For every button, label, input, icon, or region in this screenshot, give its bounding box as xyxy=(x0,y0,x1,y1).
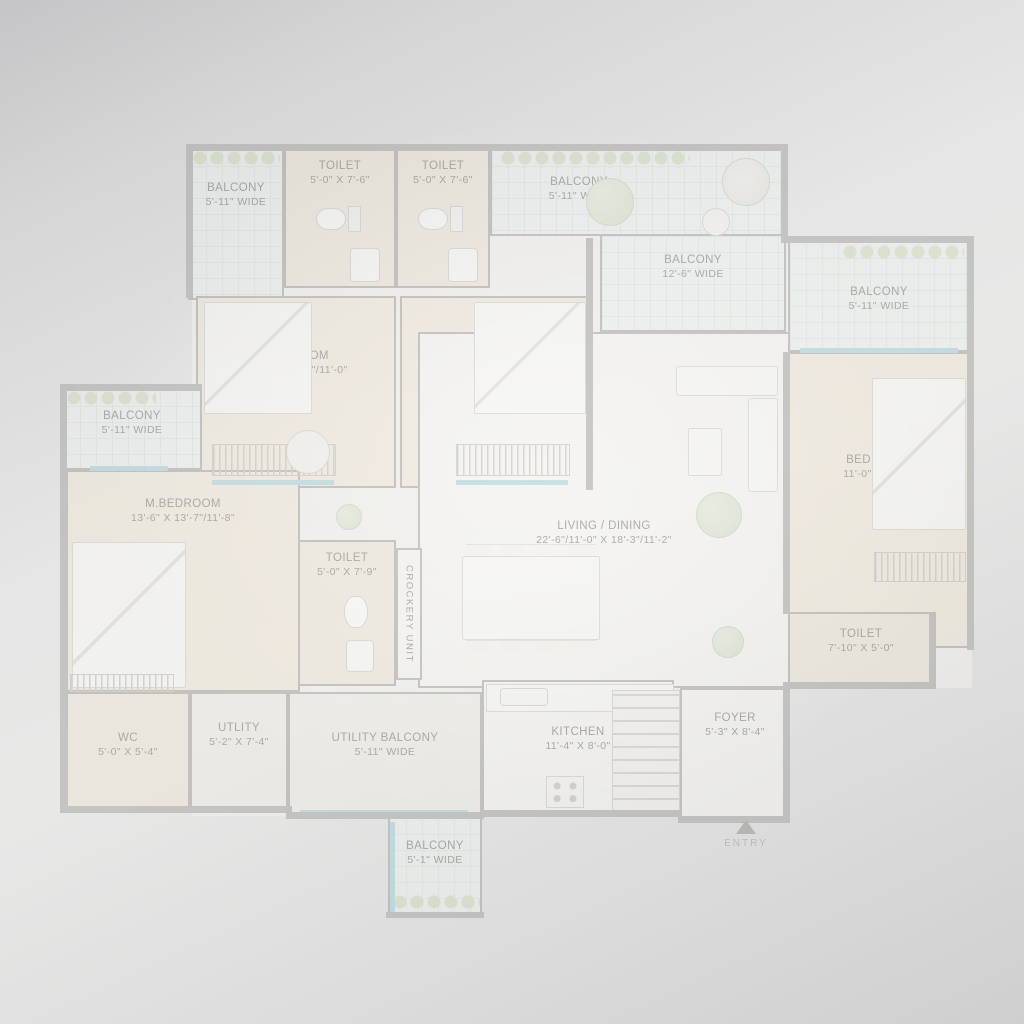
room-dims: 5'-3" X 8'-4" xyxy=(682,726,788,738)
bed-icon xyxy=(474,302,586,414)
lounge-chair-icon xyxy=(722,158,770,206)
room-dims: 5'-2" X 7'-4" xyxy=(192,736,286,748)
room-crockery-unit: CROCKERY UNIT xyxy=(396,548,422,680)
room-name: WC xyxy=(68,732,188,744)
room-name: BALCONY xyxy=(64,410,200,422)
room-label: FOYER 5'-3" X 8'-4" xyxy=(682,712,788,738)
toilet-icon xyxy=(418,208,448,230)
wall xyxy=(480,810,680,817)
wall xyxy=(781,236,974,243)
wall xyxy=(783,352,790,614)
planter-icon xyxy=(500,150,690,168)
entry-arrow-icon xyxy=(736,820,756,834)
room-label: M.BEDROOM 13'-6" X 13'-7"/11'-8" xyxy=(68,498,298,524)
wardrobe-icon xyxy=(70,674,174,692)
room-name: UTLITY xyxy=(192,722,286,734)
room-dims: 5'-11" WIDE xyxy=(190,196,282,208)
room-dims: 13'-6" X 13'-7"/11'-8" xyxy=(68,512,298,524)
room-dims: 5'-11" WIDE xyxy=(64,424,200,436)
wall xyxy=(286,812,484,819)
room-name: TOILET xyxy=(286,160,394,172)
room-label: TOILET 5'-0" X 7'-9" xyxy=(300,552,394,578)
planter-icon xyxy=(66,390,156,406)
plant-icon xyxy=(712,626,744,658)
sofa-icon xyxy=(748,398,778,492)
room-label: TOILET 5'-0" X 7'-6" xyxy=(286,160,394,186)
room-name: M.BEDROOM xyxy=(68,498,298,510)
sink-icon xyxy=(500,688,548,706)
room-wc: WC 5'-0" X 5'-4" xyxy=(66,692,190,810)
lounge-chair-icon xyxy=(586,178,634,226)
stove-hob-icon xyxy=(546,776,584,808)
wardrobe-icon xyxy=(874,552,966,582)
room-name: UTILITY BALCONY xyxy=(290,732,480,744)
room-label: WC 5'-0" X 5'-4" xyxy=(68,732,188,758)
planter-icon xyxy=(192,150,280,168)
room-name: BALCONY xyxy=(602,254,784,266)
toilet-tank-icon xyxy=(450,206,463,232)
room-label: UTLITY 5'-2" X 7'-4" xyxy=(192,722,286,748)
room-name: FOYER xyxy=(682,712,788,724)
room-dims: 12'-6" WIDE xyxy=(602,268,784,280)
wall xyxy=(60,386,67,810)
wall xyxy=(386,912,484,918)
room-name: TOILET xyxy=(398,160,488,172)
washbasin-icon xyxy=(448,248,478,282)
window-icon xyxy=(90,466,168,471)
toilet-tank-icon xyxy=(348,206,361,232)
room-dims: 7'-10" X 5'-0" xyxy=(790,642,932,654)
wall xyxy=(781,144,788,243)
wall xyxy=(783,682,790,822)
room-name: BALCONY xyxy=(504,176,654,188)
room-name: TOILET xyxy=(790,628,932,640)
room-balcony-top-left: BALCONY 5'-11" WIDE xyxy=(188,148,284,300)
sofa-icon xyxy=(676,366,778,396)
room-dims: 5'-1" WIDE xyxy=(390,854,480,866)
planter-icon xyxy=(842,244,964,260)
toilet-icon xyxy=(316,208,346,230)
room-name: BALCONY xyxy=(390,840,480,852)
room-label: TOILET 5'-0" X 7'-6" xyxy=(398,160,488,186)
plant-icon xyxy=(696,492,742,538)
room-dims: 5'-0" X 7'-6" xyxy=(398,174,488,186)
room-utility: UTLITY 5'-2" X 7'-4" xyxy=(190,692,288,810)
room-dims: 5'-0" X 5'-4" xyxy=(68,746,188,758)
wall xyxy=(967,236,974,354)
bed-icon xyxy=(72,542,186,688)
room-label: BALCONY 5'-11" WIDE xyxy=(64,410,200,436)
room-name: BALCONY xyxy=(790,286,968,298)
wall xyxy=(60,806,292,813)
window-icon xyxy=(212,480,334,485)
room-balcony-top-wide: BALCONY 12'-6" WIDE xyxy=(600,236,786,332)
planter-icon xyxy=(392,894,480,914)
room-utility-balcony: UTILITY BALCONY 5'-11" WIDE xyxy=(288,692,482,816)
toilet-icon xyxy=(344,596,368,628)
room-toilet-right: TOILET 7'-10" X 5'-0" xyxy=(788,612,934,686)
bed-icon xyxy=(204,302,312,414)
window-icon xyxy=(390,822,395,912)
wall xyxy=(967,348,974,650)
coffee-table-icon xyxy=(688,428,722,476)
room-label: BALCONY 5'-1" WIDE xyxy=(390,840,480,866)
room-dims: 5'-11" WIDE xyxy=(290,746,480,758)
window-icon xyxy=(800,348,958,353)
wall xyxy=(60,384,202,391)
room-label: UTILITY BALCONY 5'-11" WIDE xyxy=(290,732,480,758)
room-label: BALCONY 12'-6" WIDE xyxy=(602,254,784,280)
wall xyxy=(678,816,790,823)
wall xyxy=(586,238,593,490)
room-name: TOILET xyxy=(300,552,394,564)
room-name: CROCKERY UNIT xyxy=(398,550,420,678)
room-foyer: FOYER 5'-3" X 8'-4" xyxy=(680,688,790,820)
wall xyxy=(929,612,936,688)
wall xyxy=(186,144,193,298)
washbasin-icon xyxy=(346,640,374,672)
window-icon xyxy=(456,480,568,485)
room-dims: 5'-11" WIDE xyxy=(790,300,968,312)
washbasin-icon xyxy=(350,248,380,282)
floor-plan: BALCONY 5'-11" WIDE TOILET 5'-0" X 7'-6"… xyxy=(0,0,1024,1024)
room-name: BALCONY xyxy=(190,182,282,194)
wall xyxy=(186,144,788,151)
room-label: TOILET 7'-10" X 5'-0" xyxy=(790,628,932,654)
bed-icon xyxy=(872,378,966,530)
plant-icon xyxy=(336,504,362,530)
room-label: BALCONY 5'-11" WIDE xyxy=(190,182,282,208)
entry-label: ENTRY xyxy=(712,838,780,849)
room-dims: 5'-0" X 7'-6" xyxy=(286,174,394,186)
room-label: BALCONY 5'-11" WIDE xyxy=(790,286,968,312)
dining-table-icon xyxy=(462,556,600,640)
dining-chairs-icon xyxy=(466,544,596,556)
stairs-icon xyxy=(612,690,680,814)
round-table-icon xyxy=(286,430,330,474)
wardrobe-icon xyxy=(456,444,570,476)
side-table-icon xyxy=(702,208,730,236)
dining-chairs-icon xyxy=(466,640,596,652)
wall xyxy=(788,682,936,689)
room-dims: 5'-0" X 7'-9" xyxy=(300,566,394,578)
